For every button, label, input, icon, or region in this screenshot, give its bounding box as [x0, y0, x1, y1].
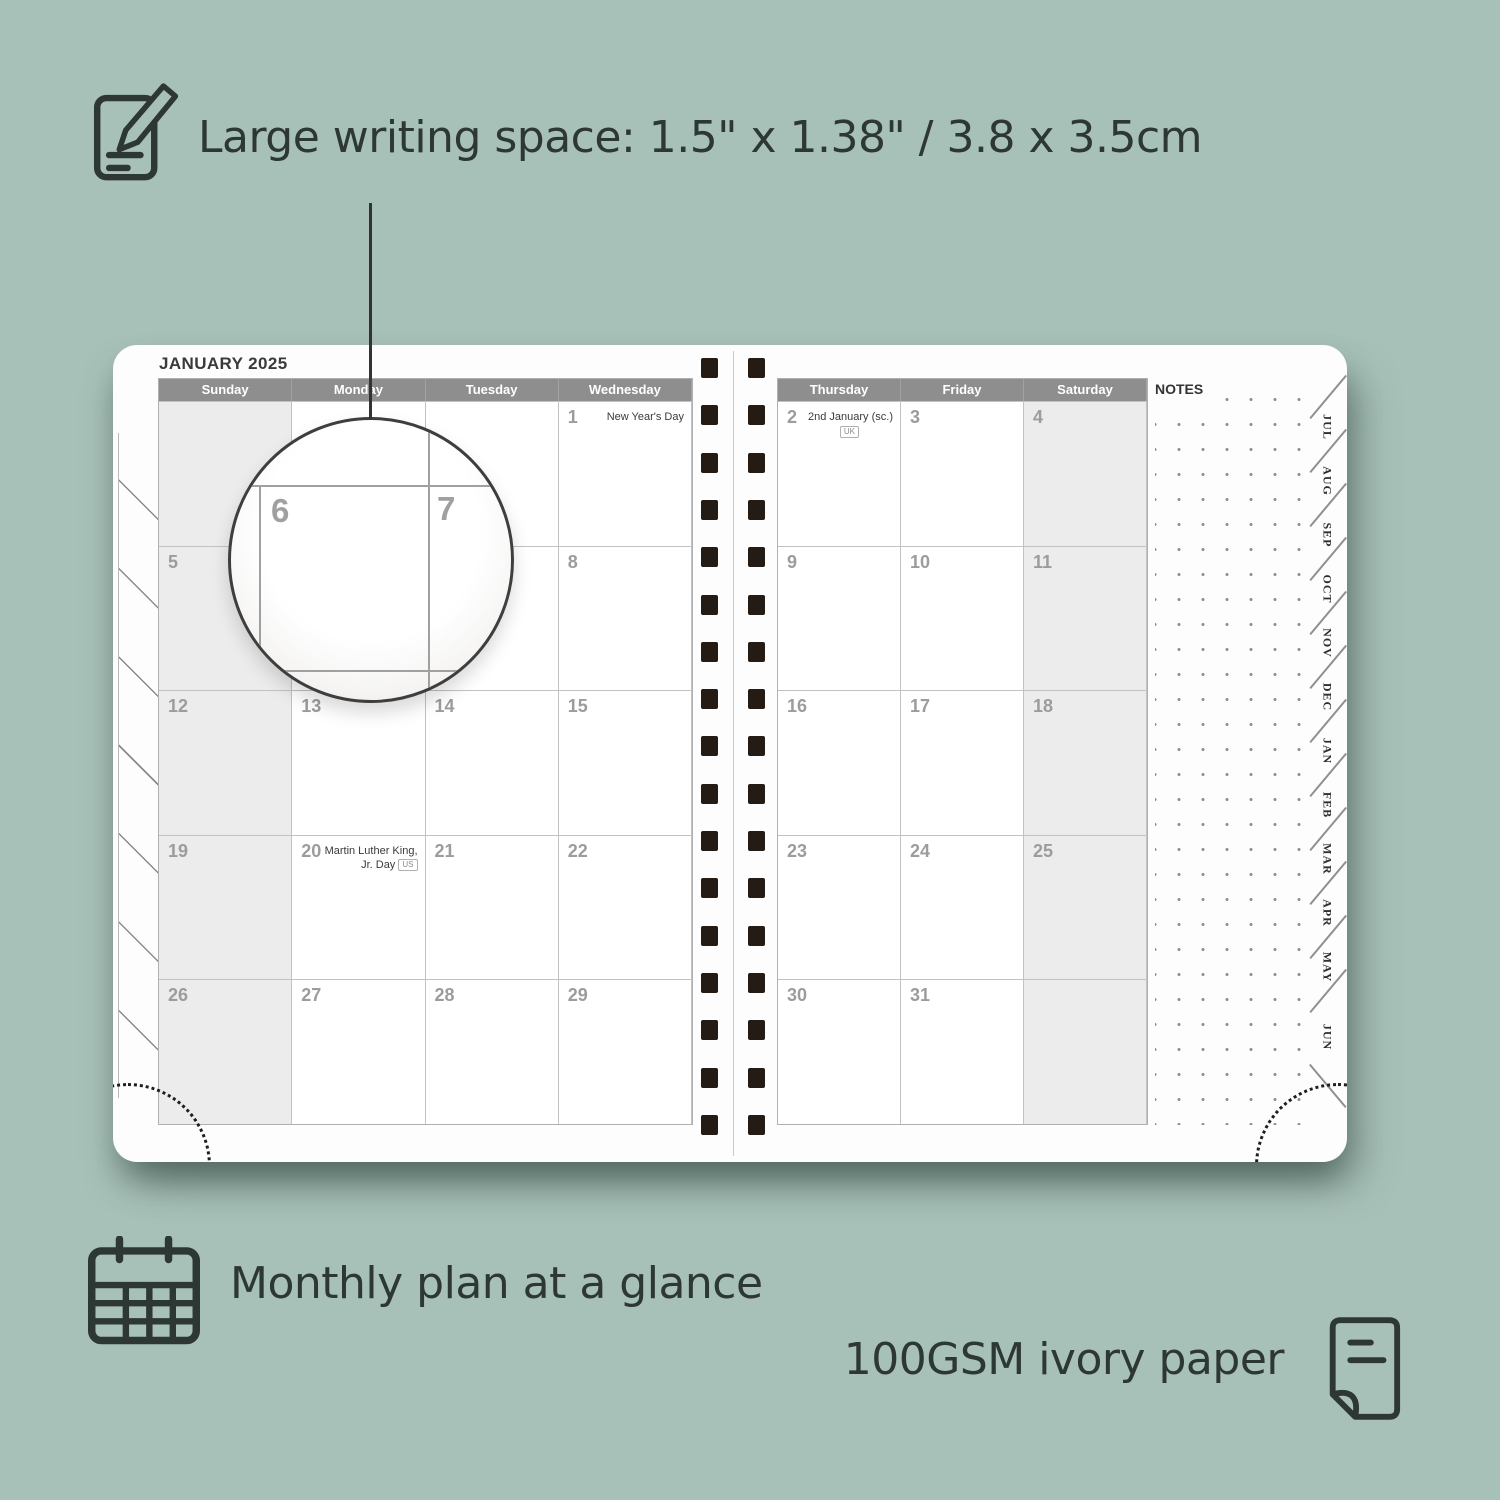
calendar-day-cell: 22nd January (sc.)UK — [778, 401, 901, 546]
holiday-label: 2nd January (sc.)UK — [808, 410, 893, 440]
calendar-day-cell: 23 — [778, 835, 901, 980]
calendar-day-cell: 25 — [1024, 835, 1147, 980]
month-tab-aug: AUG — [1307, 454, 1347, 508]
date-number: 3 — [910, 407, 920, 428]
binding-hole — [701, 358, 718, 378]
notes-label: NOTES — [1155, 381, 1211, 401]
product-infographic-background: Large writing space: 1.5" x 1.38" / 3.8 … — [0, 0, 1500, 1500]
month-tab-label: MAY — [1320, 952, 1335, 983]
binding-hole — [701, 973, 718, 993]
calendar-day-cell: 12 — [159, 690, 292, 835]
magnified-grid-line — [259, 485, 261, 672]
calendar-day-cell: 14 — [426, 690, 559, 835]
magnified-date-number: 7 — [437, 490, 455, 528]
date-number: 27 — [301, 985, 321, 1006]
month-title: JANUARY 2025 — [159, 354, 288, 374]
binding-hole — [748, 1020, 765, 1040]
binding-hole — [701, 926, 718, 946]
feature-paper-label: 100GSM ivory paper — [844, 1334, 1284, 1385]
binding-hole — [748, 689, 765, 709]
calendar-right-page-grid: ThursdayFridaySaturday22nd January (sc.)… — [777, 378, 1148, 1125]
holiday-label: Martin Luther King, Jr. Day US — [318, 844, 418, 873]
calendar-day-cell: 28 — [426, 979, 559, 1124]
binding-hole — [748, 642, 765, 662]
date-number: 25 — [1033, 841, 1053, 862]
date-number: 8 — [568, 552, 578, 573]
date-number: 16 — [787, 696, 807, 717]
date-number: 5 — [168, 552, 178, 573]
binding-hole — [748, 1115, 765, 1135]
spine-divider — [733, 351, 734, 1156]
calendar-day-cell: 10 — [901, 546, 1024, 691]
magnified-grid-line — [231, 485, 511, 487]
binding-hole — [748, 453, 765, 473]
date-number: 22 — [568, 841, 588, 862]
binding-hole — [701, 736, 718, 756]
calendar-day-cell: 9 — [778, 546, 901, 691]
binding-hole — [701, 500, 718, 520]
month-tab-jul: JUL — [1307, 400, 1347, 454]
binding-hole — [748, 736, 765, 756]
binding-hole — [701, 1020, 718, 1040]
day-header: Sunday — [159, 379, 292, 401]
binding-hole — [701, 878, 718, 898]
date-number: 30 — [787, 985, 807, 1006]
date-number: 9 — [787, 552, 797, 573]
calendar-day-cell: 24 — [901, 835, 1024, 980]
date-number: 19 — [168, 841, 188, 862]
month-tab-label: NOV — [1320, 628, 1335, 658]
month-tab-label: JAN — [1320, 738, 1335, 764]
date-number: 10 — [910, 552, 930, 573]
binding-hole — [701, 547, 718, 567]
day-header: Saturday — [1024, 379, 1147, 401]
calendar-day-cell: 3 — [901, 401, 1024, 546]
binding-hole — [748, 1068, 765, 1088]
date-number: 24 — [910, 841, 930, 862]
month-tab-label: FEB — [1320, 792, 1335, 818]
calendar-day-cell: 18 — [1024, 690, 1147, 835]
month-tab-apr: APR — [1307, 886, 1347, 940]
binding-hole — [701, 642, 718, 662]
paper-sheet-icon — [1320, 1312, 1404, 1429]
month-tab-label: JUL — [1320, 414, 1335, 440]
day-header: Monday — [292, 379, 425, 401]
month-tab-label: DEC — [1320, 683, 1335, 711]
binding-hole — [701, 453, 718, 473]
planner-open-spread: JANUARY 2025 SundayMondayTuesdayWednesda… — [113, 345, 1347, 1162]
calendar-day-cell: 1New Year's Day — [559, 401, 692, 546]
binding-hole — [701, 1115, 718, 1135]
calendar-day-cell: 16 — [778, 690, 901, 835]
date-number: 14 — [435, 696, 455, 717]
binding-hole — [748, 926, 765, 946]
calendar-day-cell: 20Martin Luther King, Jr. Day US — [292, 835, 425, 980]
calendar-day-cell: 4 — [1024, 401, 1147, 546]
tab-cut-line — [1309, 375, 1346, 419]
date-number: 28 — [435, 985, 455, 1006]
month-tab-label: MAR — [1320, 843, 1335, 875]
month-tab-label: AUG — [1320, 466, 1335, 496]
binding-hole — [701, 595, 718, 615]
notepad-pencil-icon — [88, 80, 180, 191]
month-tab-dec: DEC — [1307, 670, 1347, 724]
binding-hole — [748, 405, 765, 425]
day-header: Thursday — [778, 379, 901, 401]
date-number: 12 — [168, 696, 188, 717]
date-number: 31 — [910, 985, 930, 1006]
month-tab-mar: MAR — [1307, 832, 1347, 886]
calendar-day-cell: 27 — [292, 979, 425, 1124]
magnifier-circle: 6 7 — [228, 417, 514, 703]
page-edge-hatching — [118, 433, 160, 1098]
date-number: 4 — [1033, 407, 1043, 428]
calendar-day-cell: 22 — [559, 835, 692, 980]
binding-hole — [701, 1068, 718, 1088]
month-tab-label: JUN — [1320, 1024, 1335, 1050]
month-tab-label: SEP — [1320, 522, 1335, 547]
date-number: 26 — [168, 985, 188, 1006]
date-number: 11 — [1033, 552, 1052, 573]
magnified-grid-line — [231, 670, 511, 672]
binding-hole — [701, 405, 718, 425]
binding-hole — [748, 500, 765, 520]
month-tab-jan: JAN — [1307, 724, 1347, 778]
magnified-grid-line — [428, 420, 430, 700]
date-number: 17 — [910, 696, 930, 717]
month-tab-column: JULAUGSEPOCTNOVDECJANFEBMARAPRMAYJUN — [1307, 400, 1347, 1080]
binding-hole — [748, 547, 765, 567]
calendar-day-cell: 8 — [559, 546, 692, 691]
feature-monthly-plan-label: Monthly plan at a glance — [230, 1258, 763, 1309]
calendar-day-cell: 17 — [901, 690, 1024, 835]
region-tag: US — [398, 859, 417, 871]
date-number: 29 — [568, 985, 588, 1006]
date-number: 1 — [568, 407, 578, 428]
magnified-date-number: 6 — [271, 492, 289, 530]
binding-hole — [748, 973, 765, 993]
date-number: 18 — [1033, 696, 1053, 717]
calendar-day-cell — [1024, 979, 1147, 1124]
binding-holes-right — [748, 345, 765, 1162]
month-tab-sep: SEP — [1307, 508, 1347, 562]
calendar-day-cell: 21 — [426, 835, 559, 980]
binding-hole — [748, 358, 765, 378]
holiday-label: New Year's Day — [607, 410, 684, 424]
month-tab-jun: JUN — [1307, 994, 1347, 1080]
calendar-day-cell: 19 — [159, 835, 292, 980]
notes-dot-grid: NOTES — [1155, 381, 1305, 1125]
binding-holes-left — [701, 345, 718, 1162]
magnifier-pointer-line — [369, 203, 372, 419]
month-tab-oct: OCT — [1307, 562, 1347, 616]
binding-hole — [748, 784, 765, 804]
binding-hole — [701, 831, 718, 851]
binding-hole — [748, 831, 765, 851]
date-number: 23 — [787, 841, 807, 862]
month-tab-feb: FEB — [1307, 778, 1347, 832]
region-tag: UK — [840, 426, 859, 438]
binding-hole — [701, 689, 718, 709]
month-tab-may: MAY — [1307, 940, 1347, 994]
calendar-day-cell: 15 — [559, 690, 692, 835]
day-header: Friday — [901, 379, 1024, 401]
calendar-day-cell: 13 — [292, 690, 425, 835]
calendar-day-cell: 29 — [559, 979, 692, 1124]
feature-writing-space-label: Large writing space: 1.5" x 1.38" / 3.8 … — [198, 112, 1202, 163]
binding-hole — [748, 595, 765, 615]
month-tab-nov: NOV — [1307, 616, 1347, 670]
date-number: 13 — [301, 696, 321, 717]
date-number: 21 — [435, 841, 455, 862]
binding-hole — [748, 878, 765, 898]
month-tab-label: APR — [1320, 899, 1335, 927]
day-header: Wednesday — [559, 379, 692, 401]
binding-hole — [701, 784, 718, 804]
calendar-day-cell: 31 — [901, 979, 1024, 1124]
date-number: 2 — [787, 407, 797, 428]
day-header: Tuesday — [426, 379, 559, 401]
calendar-grid-icon — [85, 1236, 203, 1353]
calendar-day-cell: 30 — [778, 979, 901, 1124]
calendar-day-cell: 11 — [1024, 546, 1147, 691]
month-tab-label: OCT — [1320, 574, 1335, 603]
date-number: 15 — [568, 696, 588, 717]
